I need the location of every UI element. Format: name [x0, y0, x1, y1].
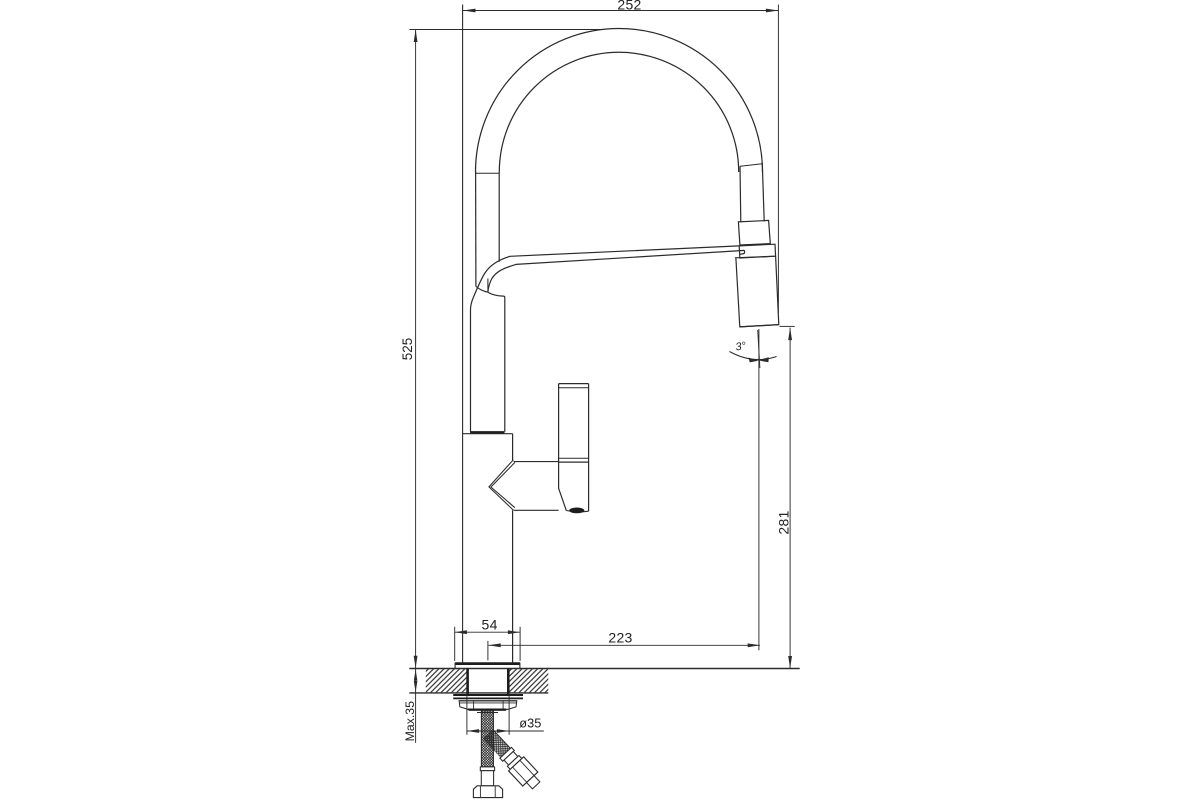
svg-text:Max.35: Max.35 [403, 701, 417, 741]
svg-text:281: 281 [776, 510, 792, 534]
svg-text:252: 252 [617, 0, 641, 13]
svg-text:3°: 3° [735, 340, 748, 353]
svg-text:525: 525 [400, 338, 415, 361]
svg-text:54: 54 [482, 617, 498, 633]
svg-text:ø35: ø35 [519, 716, 541, 731]
svg-text:223: 223 [608, 630, 632, 646]
